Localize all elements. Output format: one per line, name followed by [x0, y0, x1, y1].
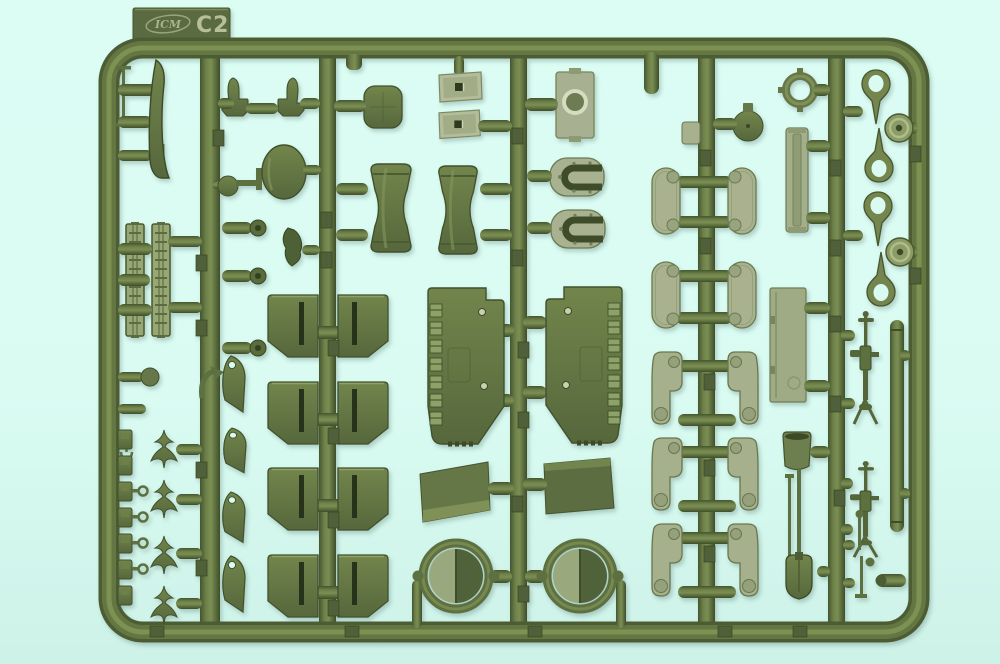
- part-grille: [152, 222, 170, 338]
- part-fin: [223, 556, 245, 612]
- part-fender-profile: [149, 60, 169, 178]
- part-machine-gun: [850, 311, 879, 424]
- part-anchor-bracket: [151, 586, 177, 624]
- part-tarp-drum: [371, 164, 411, 252]
- part-plug-peg: [222, 268, 266, 284]
- part-flat-tab: [682, 122, 700, 144]
- part-hatch-plate: [439, 110, 480, 139]
- photo-canvas: ICM C2: [0, 0, 1000, 664]
- part-windscreen: [420, 462, 490, 522]
- part-cushion: [364, 86, 402, 128]
- part-dome: [733, 103, 763, 141]
- sprue-photo: ICM C2: [0, 0, 1000, 664]
- part-windscreen: [544, 458, 614, 514]
- part-small-bracket: [283, 228, 301, 266]
- part-stowage-panel: [770, 288, 806, 402]
- sprue-code-text: C2: [196, 13, 229, 38]
- part-block-round-hole: [556, 68, 594, 142]
- part-ball-lever: [218, 168, 262, 196]
- runner-5: [828, 48, 845, 632]
- part-anchor-bracket: [151, 536, 177, 574]
- part-fin: [223, 356, 245, 412]
- part-shovel: [785, 468, 812, 599]
- part-hood-panel: [546, 287, 622, 443]
- part-pulley: [886, 238, 914, 266]
- part-top-cylinder: [644, 52, 659, 94]
- runner-4: [698, 48, 715, 632]
- part-headlamp: [413, 543, 500, 609]
- part-plug-peg: [222, 220, 266, 236]
- part-bracket: [278, 78, 304, 116]
- part-bracket: [222, 78, 248, 116]
- part-ball-knob: [141, 368, 159, 386]
- sprue: ICM C2: [109, 8, 921, 637]
- part-hood-panel: [428, 288, 504, 444]
- part-small-cylinder: [876, 574, 907, 587]
- part-eyelet-fittings: [118, 430, 148, 605]
- part-shackles: [843, 70, 895, 306]
- part-bucket: [783, 432, 811, 470]
- part-hatch-plate: [439, 72, 482, 102]
- brand-text: ICM: [154, 18, 182, 31]
- part-tarp-drum: [439, 166, 477, 254]
- part-anchor-bracket: [151, 480, 177, 518]
- part-pulley: [885, 114, 913, 142]
- part-plug-peg: [222, 340, 266, 356]
- part-headlamp: [537, 543, 624, 609]
- part-u-clamp: [551, 210, 605, 248]
- label-tab: ICM C2: [133, 8, 230, 40]
- part-flat-bar: [786, 128, 808, 232]
- part-u-clamp: [550, 158, 604, 196]
- part-fin: [223, 492, 245, 542]
- part-fin: [224, 428, 246, 473]
- part-anchor-bracket: [151, 430, 177, 468]
- part-oval-pot: [262, 145, 306, 199]
- part-towing-ring: [778, 68, 814, 112]
